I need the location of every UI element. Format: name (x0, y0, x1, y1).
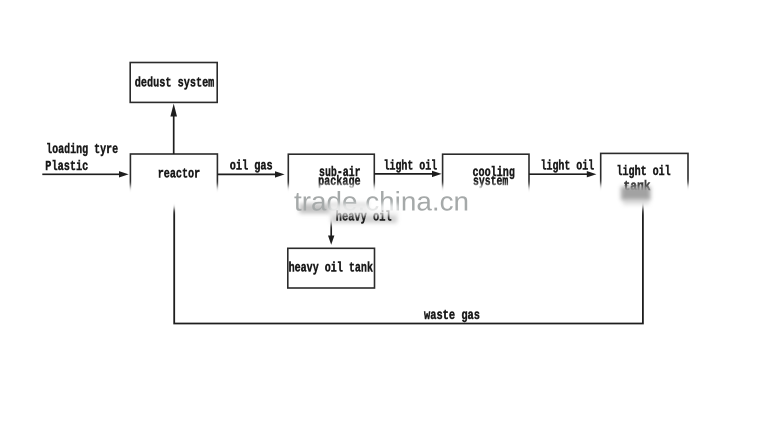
svg-text:light oil: light oil (384, 158, 438, 174)
svg-text:heavy oil tank: heavy oil tank (289, 261, 373, 277)
svg-text:loading tyre: loading tyre (46, 142, 118, 158)
svg-text:light oil: light oil (617, 164, 671, 180)
svg-text:oil gas: oil gas (230, 159, 273, 175)
svg-text:waste gas: waste gas (424, 308, 480, 324)
svg-text:light oil: light oil (541, 159, 595, 175)
svg-text:Plastic: Plastic (45, 159, 88, 175)
svg-text:reactor: reactor (158, 166, 201, 182)
svg-text:dedust system: dedust system (135, 76, 215, 92)
